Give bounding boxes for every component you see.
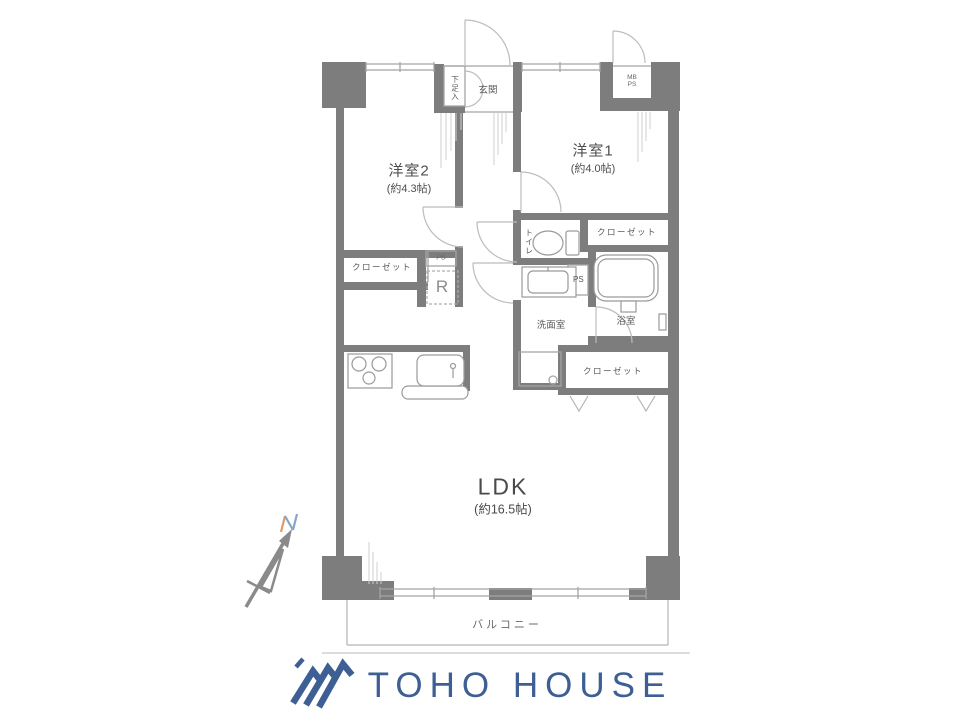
meter-box-line1: MB [627, 74, 637, 81]
shoe-storage-label: 下足入 [450, 75, 461, 101]
bedroom1-label: 洋室1 [572, 140, 613, 161]
washroom-label: 洗面室 [537, 317, 566, 331]
toilet-icon [533, 231, 579, 255]
kitchen-sink-icon [402, 355, 468, 399]
meter-box-label: MB PS [627, 74, 637, 88]
pipe-space-bath-label: PS [573, 276, 583, 284]
brand-logo-icon [293, 659, 352, 707]
refrigerator-label: R [436, 277, 448, 297]
bedroom1-size: (約4.0帖) [571, 160, 616, 176]
meter-box-line2: PS [627, 81, 637, 88]
pipe-space-small-label: PS [436, 255, 445, 262]
brand-wordmark: TOHO HOUSE [368, 666, 673, 706]
floorplan-page: 洋室2 (約4.3帖) 洋室1 (約4.0帖) LDK (約16.5帖) 玄関 … [0, 0, 960, 720]
ldk-size: (約16.5帖) [474, 499, 532, 518]
closet-folding-door-marks [570, 396, 655, 411]
entrance-label: 玄関 [478, 82, 497, 96]
walls [322, 62, 680, 600]
closet-ldk-label: クローゼット [583, 365, 643, 377]
ldk-label: LDK [478, 474, 529, 501]
vanity-sink-icon [522, 267, 576, 297]
floorplan-drawing [0, 0, 960, 720]
toilet-label: トイレ [524, 229, 535, 256]
bedroom2-label: 洋室2 [388, 160, 429, 181]
balcony-label: バルコニー [472, 616, 542, 632]
compass-icon [246, 514, 297, 607]
closet-bedroom2-label: クローゼット [352, 261, 412, 273]
stove-icon [348, 354, 392, 388]
closet-bedroom1-label: クローゼット [597, 226, 657, 238]
bathroom-label: 浴室 [616, 313, 635, 327]
bedroom2-size: (約4.3帖) [387, 180, 432, 196]
